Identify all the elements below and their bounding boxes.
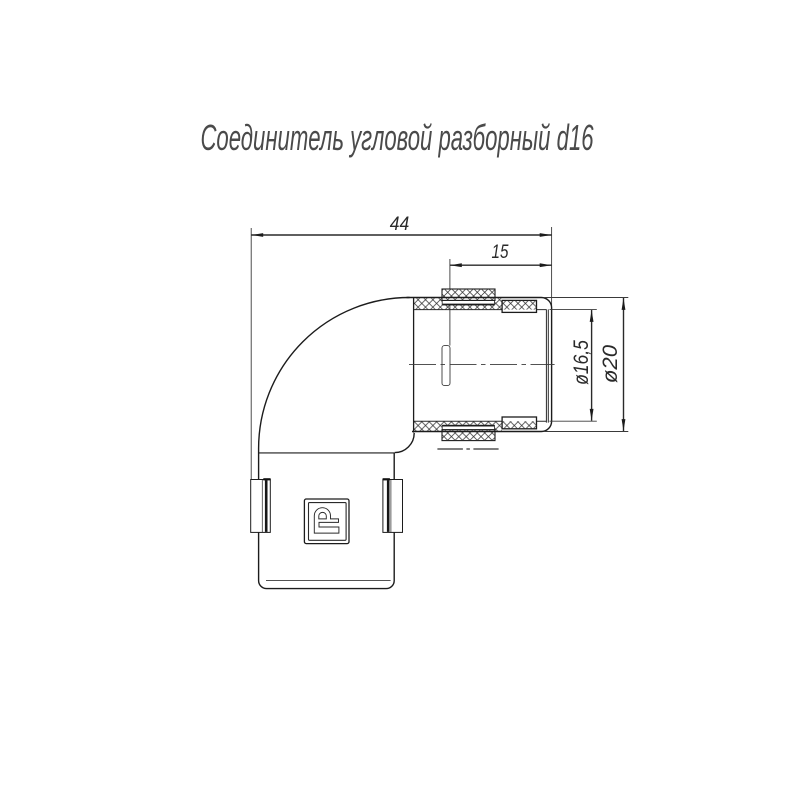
svg-text:15: 15 bbox=[492, 240, 509, 262]
svg-text:ø20: ø20 bbox=[597, 345, 622, 383]
svg-text:Соединитель угловой разборный: Соединитель угловой разборный d16 bbox=[200, 119, 593, 159]
svg-text:44: 44 bbox=[390, 212, 410, 234]
svg-text:ø16,5: ø16,5 bbox=[570, 340, 594, 385]
